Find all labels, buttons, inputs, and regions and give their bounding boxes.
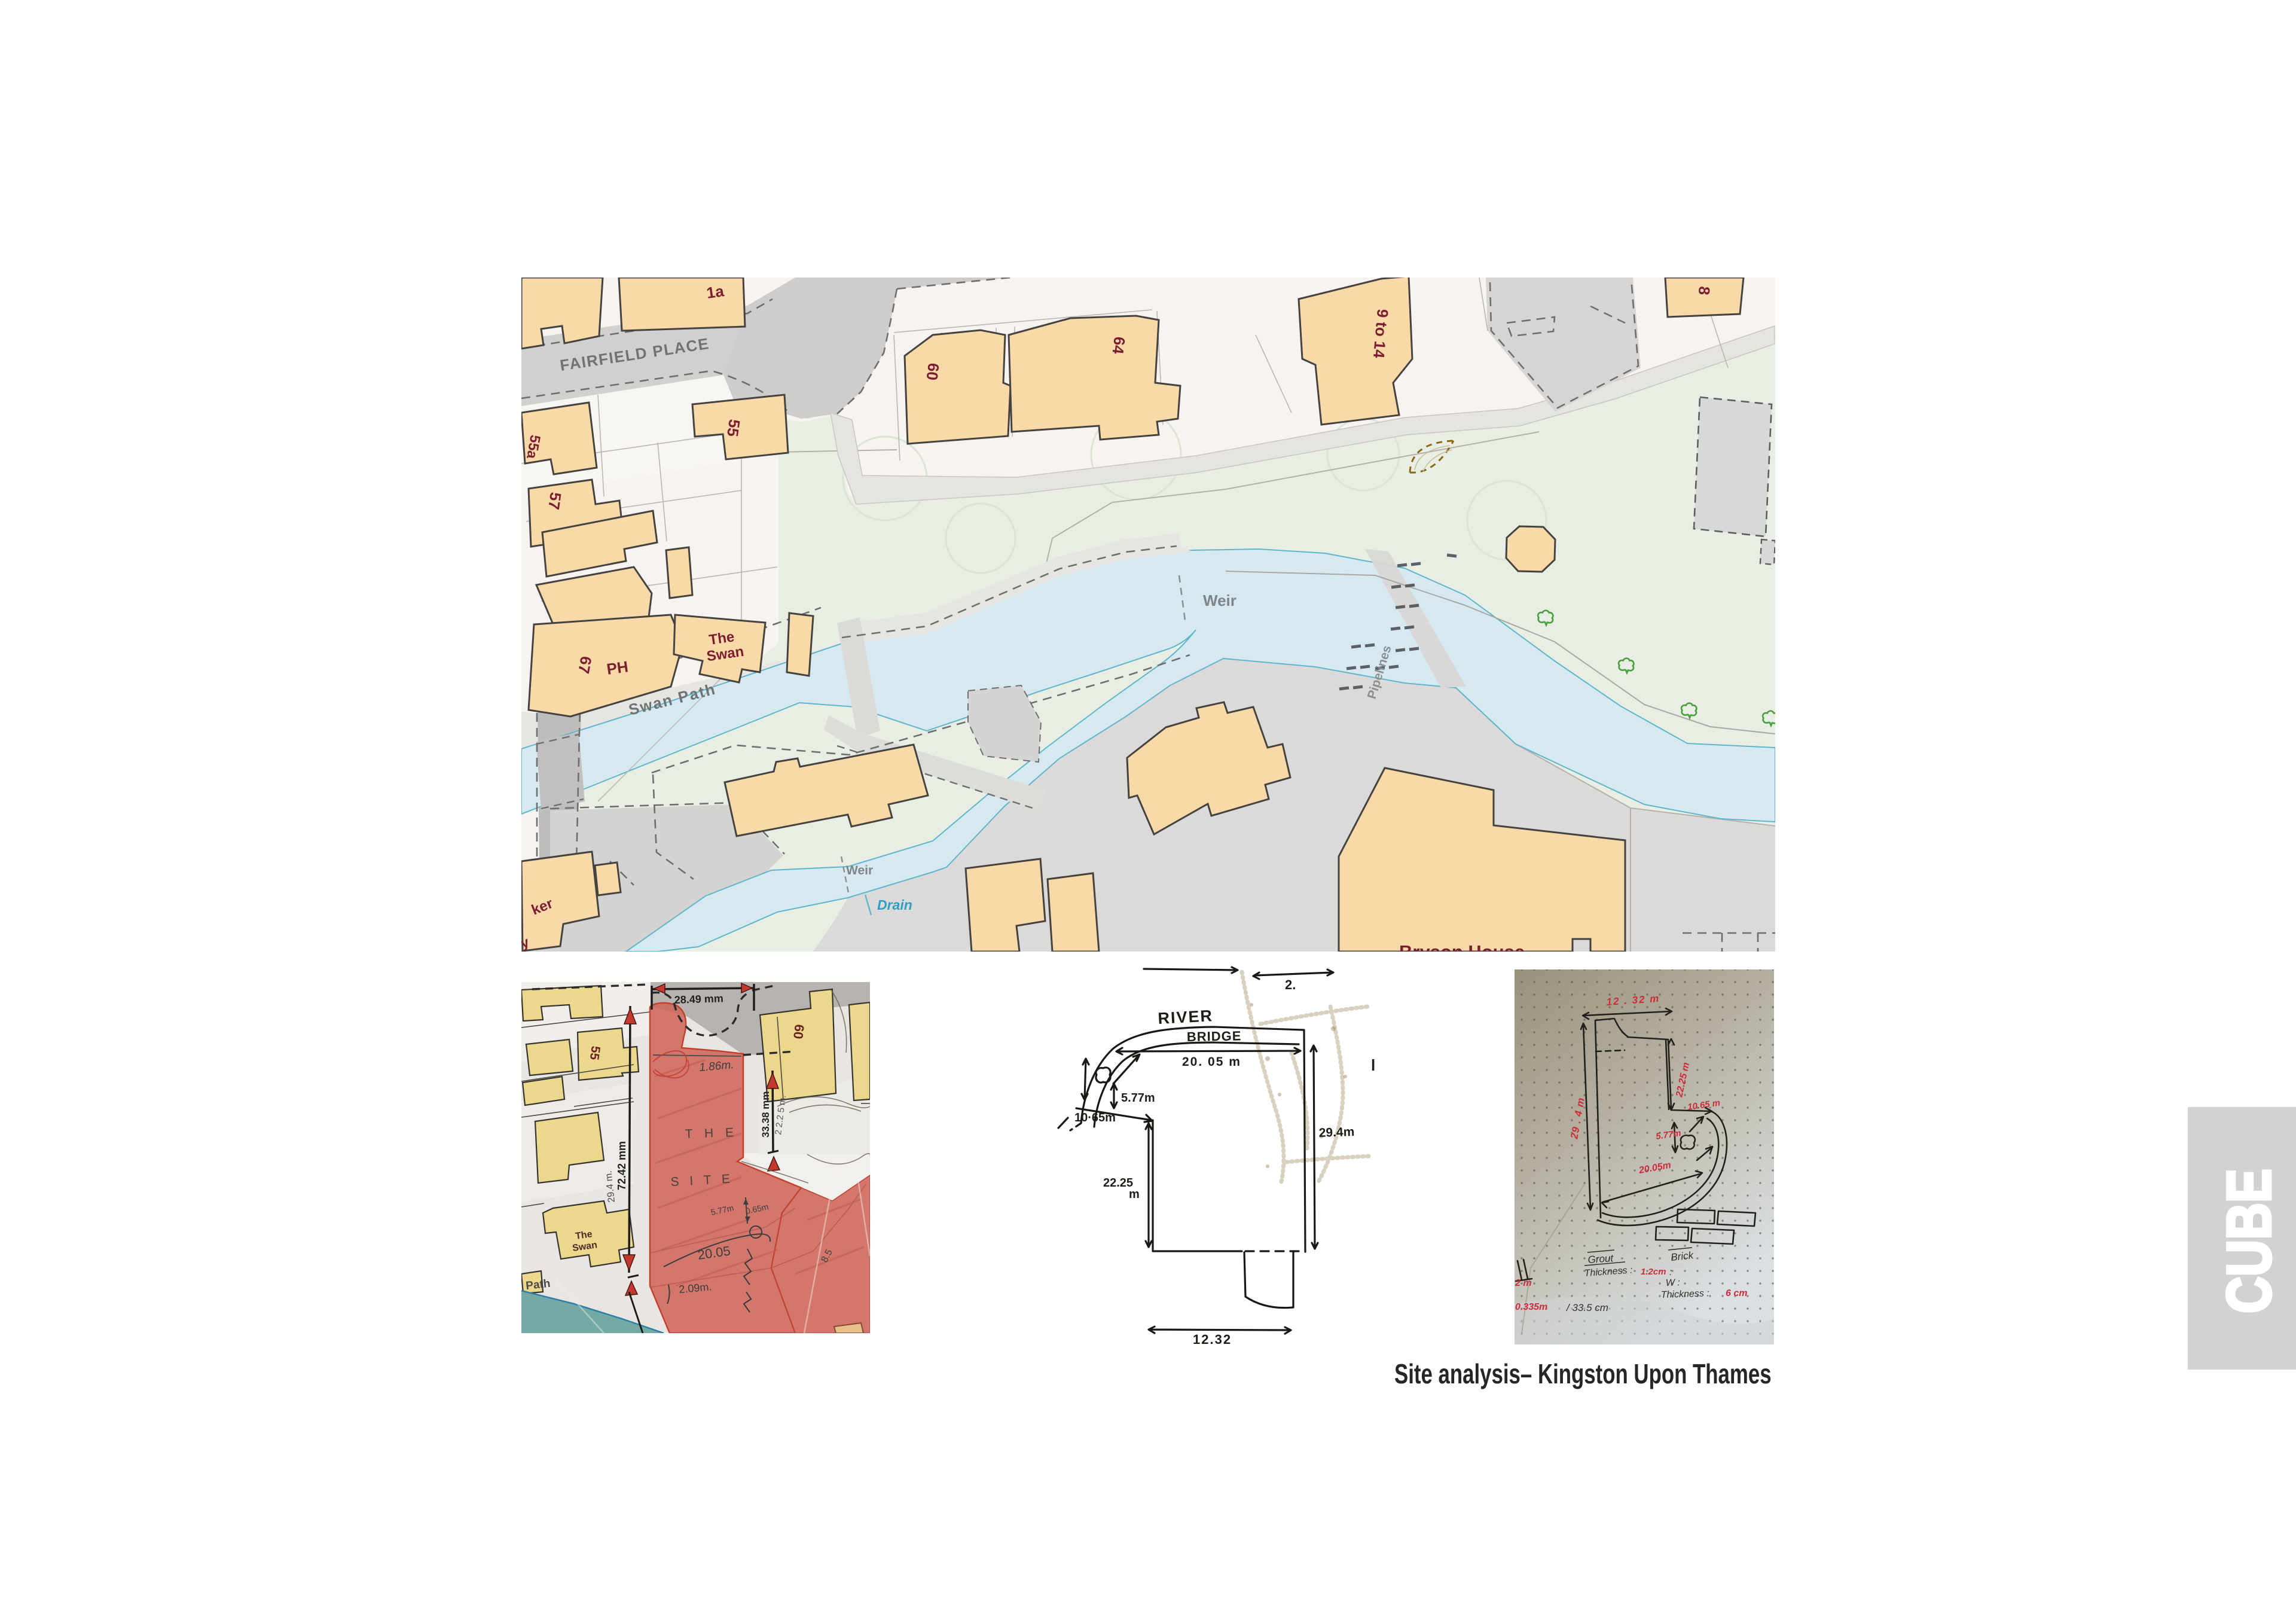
svg-text:Site analysis– Kingston Upon T: Site analysis– Kingston Upon Thames — [1394, 1358, 1772, 1389]
svg-text:28.49 mm: 28.49 mm — [674, 992, 723, 1006]
svg-text:55: 55 — [587, 1045, 603, 1061]
svg-text:6 cm: 6 cm — [1726, 1288, 1747, 1298]
svg-text:Drain: Drain — [877, 897, 912, 913]
svg-text:67: 67 — [575, 655, 596, 675]
svg-text:PH: PH — [606, 657, 630, 678]
svg-text:l: l — [1371, 1056, 1375, 1074]
svg-text:10·65m: 10·65m — [1074, 1111, 1116, 1124]
svg-text:Weir: Weir — [846, 864, 873, 877]
svg-text:5.77m: 5.77m — [1121, 1092, 1155, 1105]
svg-text:CUBE: CUBE — [2215, 1169, 2284, 1313]
svg-text:20. 05 m: 20. 05 m — [1182, 1055, 1241, 1069]
svg-text:29.4m: 29.4m — [1318, 1125, 1354, 1140]
svg-text:m: m — [1129, 1188, 1140, 1201]
svg-text:/ 33.5 cm: / 33.5 cm — [1566, 1302, 1608, 1313]
svg-text:0.335m: 0.335m — [1515, 1302, 1547, 1312]
svg-text:57: 57 — [545, 491, 565, 511]
svg-text:72.42 mm: 72.42 mm — [616, 1141, 628, 1190]
svg-text:Thickness :: Thickness : — [1661, 1288, 1709, 1300]
svg-text:Path: Path — [525, 1278, 551, 1292]
svg-text:55: 55 — [723, 418, 744, 438]
svg-text:1a: 1a — [706, 282, 725, 302]
svg-text:1.2cm: 1.2cm — [1641, 1267, 1666, 1277]
svg-text:60: 60 — [923, 362, 943, 381]
svg-text:60: 60 — [790, 1023, 807, 1039]
svg-text:2 m: 2 m — [1515, 1278, 1532, 1288]
svg-text:Weir: Weir — [1203, 592, 1236, 609]
svg-text:T H E: T H E — [685, 1126, 738, 1141]
svg-text:W :: W : — [1666, 1278, 1681, 1288]
svg-text:BRIDGE: BRIDGE — [1187, 1028, 1242, 1044]
svg-text:Bryson House: Bryson House — [1399, 941, 1525, 962]
svg-text:RIVER: RIVER — [1158, 1007, 1214, 1028]
svg-text:2.: 2. — [1285, 977, 1296, 992]
svg-text:8: 8 — [1695, 285, 1714, 295]
svg-text:12.32: 12.32 — [1193, 1332, 1232, 1347]
svg-text:64: 64 — [1109, 336, 1128, 355]
svg-text:33.38 mm: 33.38 mm — [760, 1092, 771, 1138]
svg-text::: : — [1669, 1267, 1672, 1278]
